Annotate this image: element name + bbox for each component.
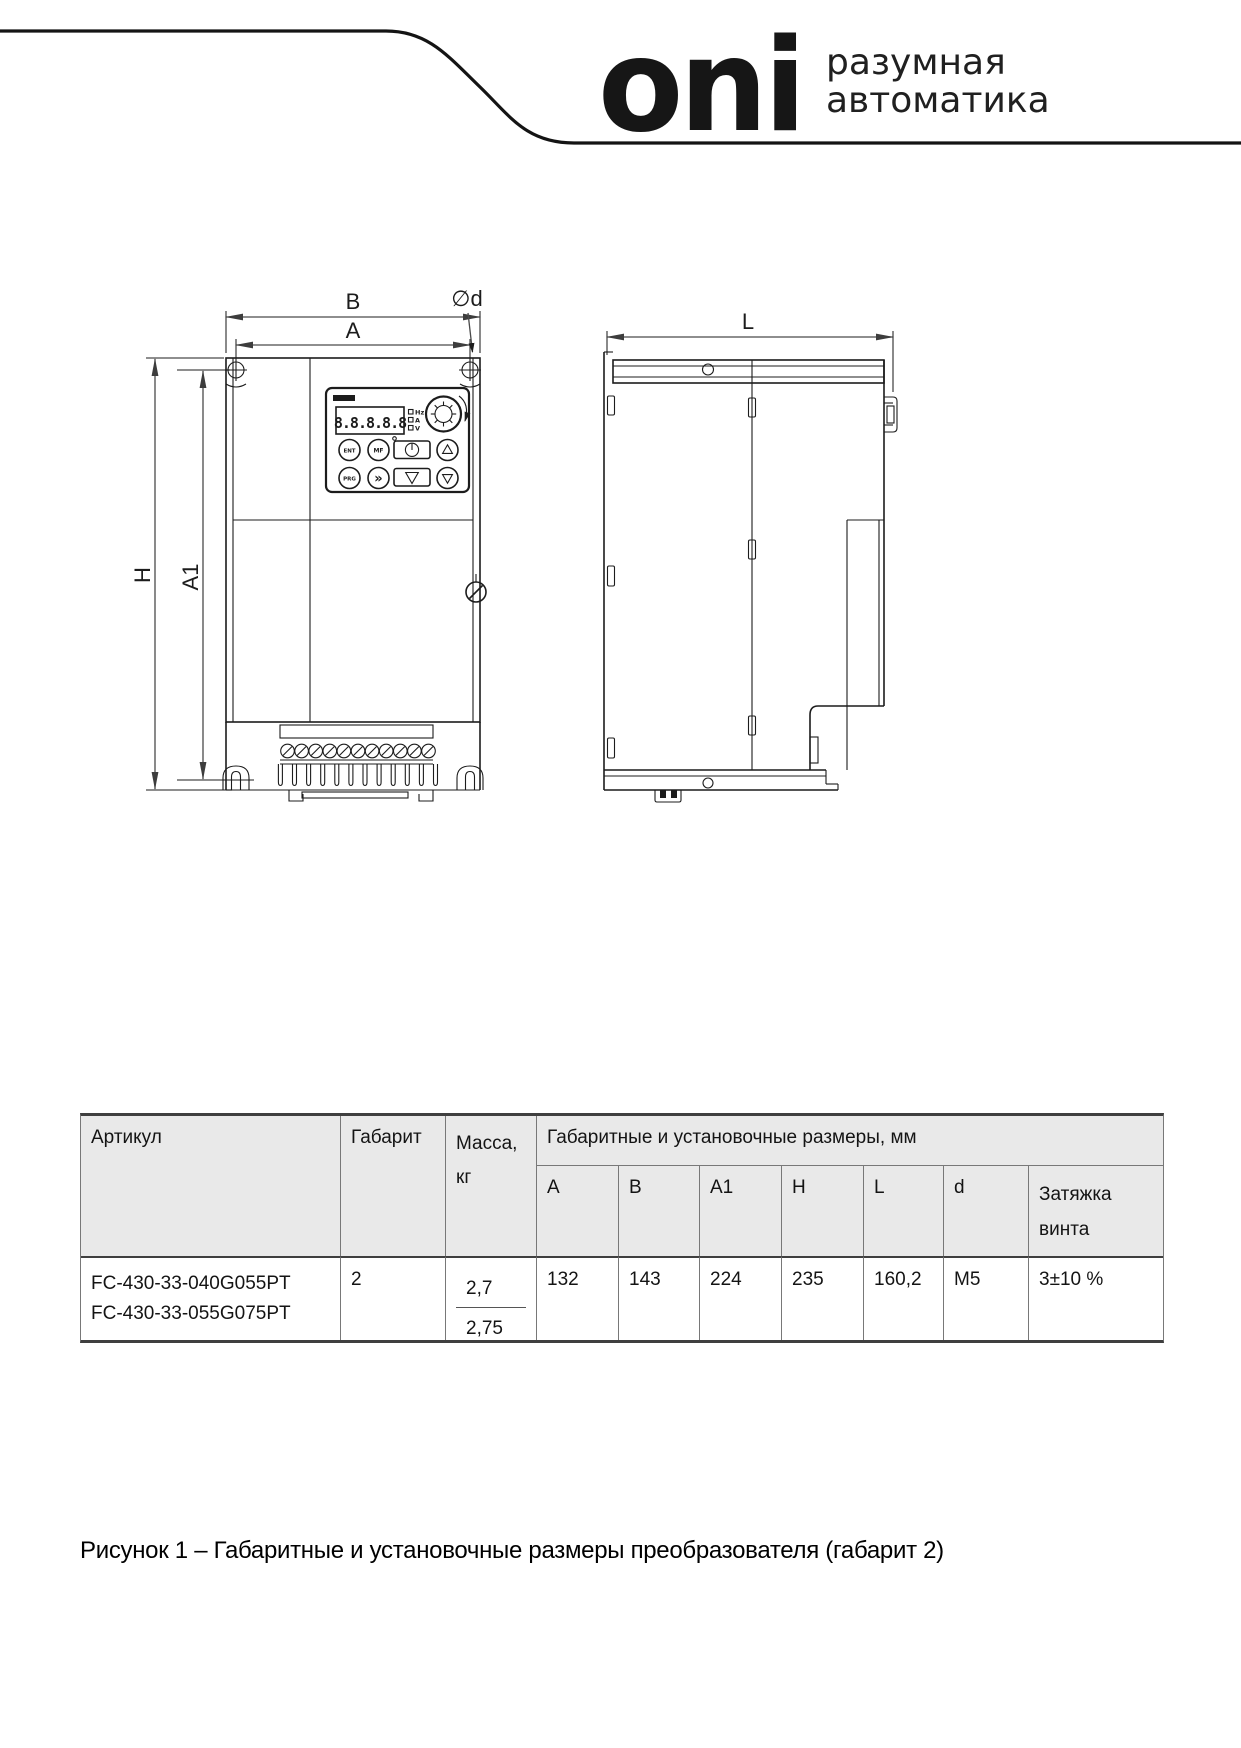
cell-dim-h: 235 [782, 1256, 864, 1340]
mf-button [368, 440, 389, 461]
ent-button [339, 440, 360, 461]
front-body-outline [225, 358, 481, 790]
mount-slot-left [223, 766, 249, 790]
indicator-v: V [415, 425, 420, 433]
mount-slot-right [457, 766, 483, 790]
indicator-a: A [415, 417, 420, 425]
cell-article: FC-430-33-040G055PT FC-430-33-055G075PT [81, 1256, 341, 1340]
run-led-icon [393, 437, 397, 441]
brand-logo: oni [598, 12, 803, 162]
terminal-cover-edge [884, 397, 897, 432]
din-latch-side [810, 737, 818, 763]
col-header-mass: Масса, кг [446, 1116, 537, 1256]
col-header-a: A [537, 1166, 619, 1256]
dim-label-l: L [742, 309, 754, 334]
knob-rotation-arrow-icon [459, 396, 467, 421]
svg-text:»: » [374, 472, 382, 487]
din-clip [655, 790, 681, 802]
dim-label-a1: A1 [178, 564, 203, 591]
col-header-d: d [944, 1166, 1029, 1256]
indicator-hz: Hz [415, 409, 424, 417]
run-button [394, 441, 430, 459]
dim-label-b: B [346, 289, 361, 314]
dimensions-table: Артикул Габарит Масса, кг Габаритные и у… [80, 1113, 1164, 1343]
col-header-l: L [864, 1166, 944, 1256]
dimension-A: A [236, 318, 470, 359]
down-button [437, 468, 458, 489]
brand-tagline: разумная автоматика [826, 44, 1050, 120]
svg-text:MF: MF [373, 448, 383, 455]
col-header-dimensions-group: Габаритные и установочные размеры, мм [537, 1116, 1163, 1166]
mount-hole-left [225, 359, 247, 381]
col-header-size-class: Габарит [341, 1116, 446, 1256]
front-view: B A H A1 ∅d [130, 286, 486, 801]
article-1: FC-430-33-040G055PT [91, 1269, 330, 1299]
col-header-article: Артикул [81, 1116, 341, 1256]
col-header-h: H [782, 1166, 864, 1256]
svg-text:ENT: ENT [343, 448, 355, 454]
prg-button [339, 468, 360, 489]
dimension-A1: A1 [177, 370, 254, 780]
cell-dim-l: 160,2 [864, 1256, 944, 1340]
dimension-H: H [130, 358, 232, 790]
potentiometer-knob-icon [426, 396, 467, 432]
cell-dim-b: 143 [619, 1256, 700, 1340]
dim-label-d: ∅d [451, 286, 482, 311]
figure-caption: Рисунок 1 – Габаритные и установочные ра… [80, 1536, 944, 1566]
down-arrow-icon [443, 475, 453, 484]
panel-brand-label [333, 395, 355, 401]
cell-mass: 2,7 2,75 [446, 1256, 537, 1340]
cell-dim-d: M5 [944, 1256, 1029, 1340]
mass-value-1: 2,7 [456, 1269, 526, 1308]
col-header-torque: Затяжка винта (Н*м) [1029, 1166, 1163, 1256]
seven-segment-display [336, 407, 404, 434]
dimension-L: L [607, 309, 893, 392]
dim-label-a: A [346, 318, 361, 343]
control-panel: 8.8.8.8.8 Hz A V [326, 388, 469, 492]
up-button [437, 440, 458, 461]
cell-torque: 3±10 % [1029, 1256, 1163, 1340]
dimension-B: B [226, 289, 480, 353]
display-digits: 8.8.8.8.8 [334, 414, 407, 432]
dim-label-h: H [130, 567, 155, 583]
cell-size-class: 2 [341, 1256, 446, 1340]
terminal-block [278, 725, 437, 801]
dimension-hole-diameter: ∅d [451, 286, 482, 352]
foot-clip-left [289, 790, 303, 801]
mass-value-2: 2,75 [456, 1308, 526, 1340]
foot-clip-right [419, 790, 433, 801]
article-2: FC-430-33-055G075PT [91, 1299, 330, 1329]
rail-hole-bottom [703, 778, 713, 788]
keypad-row-1: ENT MF [339, 437, 458, 461]
up-arrow-icon [443, 445, 453, 454]
side-body-outline [604, 352, 897, 802]
cover-screw-icon [466, 574, 486, 602]
mount-hole-right [459, 359, 481, 381]
vent-slots [608, 396, 756, 758]
datasheet-page: { "brand": { "logo_text": "oni", "taglin… [0, 0, 1241, 1748]
col-header-a1: A1 [700, 1166, 782, 1256]
side-view: L [604, 309, 897, 802]
col-header-b: B [619, 1166, 700, 1256]
rail-hole-top [703, 364, 714, 375]
stop-icon [406, 473, 419, 484]
bottom-rail [604, 770, 838, 802]
shift-button [368, 468, 389, 489]
stop-button [394, 469, 430, 487]
svg-text:PRG: PRG [343, 476, 356, 482]
unit-indicators: Hz A V [409, 409, 425, 433]
cell-dim-a: 132 [537, 1256, 619, 1340]
run-icon [405, 443, 418, 456]
keypad-row-2: PRG » [339, 468, 458, 489]
cell-dim-a1: 224 [700, 1256, 782, 1340]
